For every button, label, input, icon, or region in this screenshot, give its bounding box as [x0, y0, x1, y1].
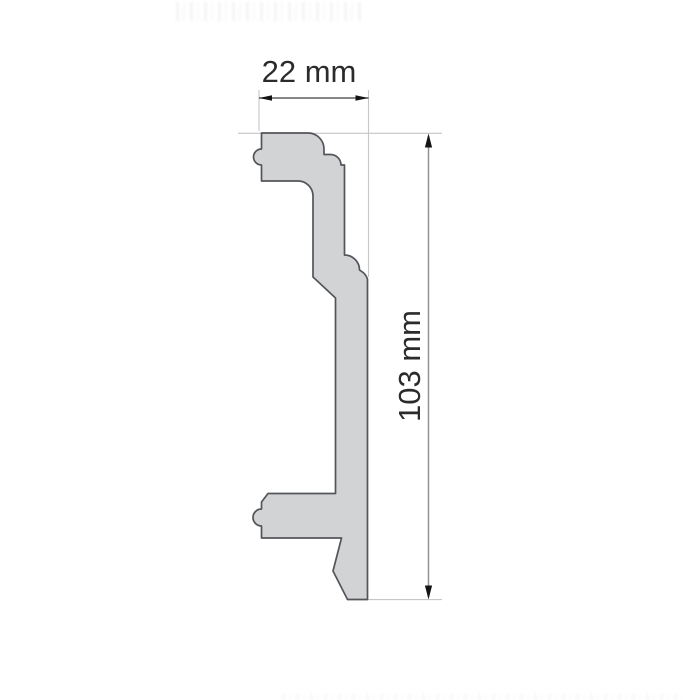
width-dimension-label: 22 mm [262, 54, 357, 89]
height-arrow-up-icon [425, 134, 432, 148]
technical-drawing-page: 22 mm 103 mm [0, 0, 700, 700]
height-arrow-down-icon [425, 586, 432, 600]
width-arrow-right-icon [356, 95, 369, 100]
profile-diagram: 22 mm 103 mm [0, 0, 700, 700]
moulding-profile-shape [253, 133, 368, 600]
width-arrow-left-icon [259, 95, 272, 100]
height-dimension-label: 103 mm [392, 310, 427, 422]
